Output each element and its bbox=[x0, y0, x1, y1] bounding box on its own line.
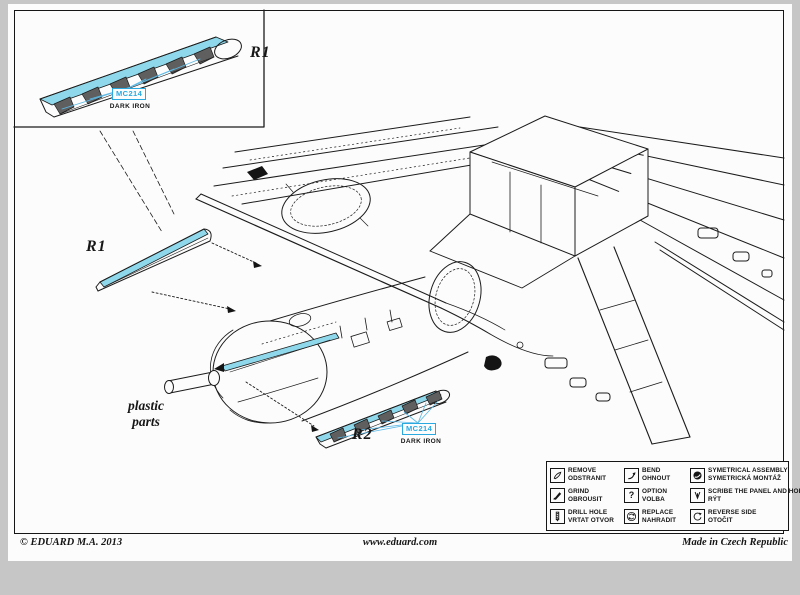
legend-item-option: ? OPTIONVOLBA bbox=[624, 487, 688, 506]
remove-icon bbox=[550, 468, 565, 483]
instruction-sheet: R1 MC214 DARK IRON R1 plastic parts R2 M… bbox=[8, 4, 792, 561]
legend-item-drill-hole: DRILL HOLEVRTAT OTVOR bbox=[550, 507, 622, 526]
inset-part-label: R1 bbox=[250, 44, 271, 62]
legend-item-replace: REPLACENAHRADIT bbox=[624, 507, 688, 526]
made-in-text: Made in Czech Republic bbox=[682, 537, 788, 548]
plastic-parts-note: plastic parts bbox=[104, 398, 188, 430]
inset-paint-name: DARK IRON bbox=[106, 103, 154, 110]
canopy-drawing bbox=[470, 116, 648, 256]
symmetrical-assembly-icon bbox=[690, 468, 705, 483]
r2-paint-code: MC214 bbox=[402, 423, 436, 435]
copyright-text: © EDUARD M.A. 2013 bbox=[20, 537, 122, 548]
r2-paint-name: DARK IRON bbox=[396, 438, 446, 445]
airframe-drawing bbox=[152, 116, 784, 444]
grind-icon bbox=[550, 488, 565, 503]
legend-item-scribe: SCRIBE THE PANEL AND HOLESRÝT bbox=[690, 487, 785, 506]
bend-icon bbox=[624, 468, 639, 483]
legend-item-bend: BENDOHNOUT bbox=[624, 466, 688, 485]
r2-part-label: R2 bbox=[352, 426, 373, 444]
inset-paint-code: MC214 bbox=[112, 88, 146, 100]
scribe-icon bbox=[690, 488, 705, 503]
drill-hole-icon bbox=[550, 509, 565, 524]
r1-part-drawing bbox=[96, 229, 212, 291]
legend-item-symmetrical-assembly: SYMETRICAL ASSEMBLYSYMETRICKÁ MONTÁŽ bbox=[690, 466, 785, 485]
legend-item-reverse-side: REVERSE SIDEOTOČIT bbox=[690, 507, 785, 526]
symbol-legend: REMOVEODSTRANIT BENDOHNOUT SYMETRICAL AS… bbox=[546, 461, 789, 531]
reverse-side-icon bbox=[690, 509, 705, 524]
website-text: www.eduard.com bbox=[363, 537, 437, 548]
option-icon: ? bbox=[624, 488, 639, 503]
legend-item-grind: GRINDOBROUSIT bbox=[550, 487, 622, 506]
replace-icon bbox=[624, 509, 639, 524]
r1-part-label: R1 bbox=[86, 238, 107, 256]
legend-item-remove: REMOVEODSTRANIT bbox=[550, 466, 622, 485]
